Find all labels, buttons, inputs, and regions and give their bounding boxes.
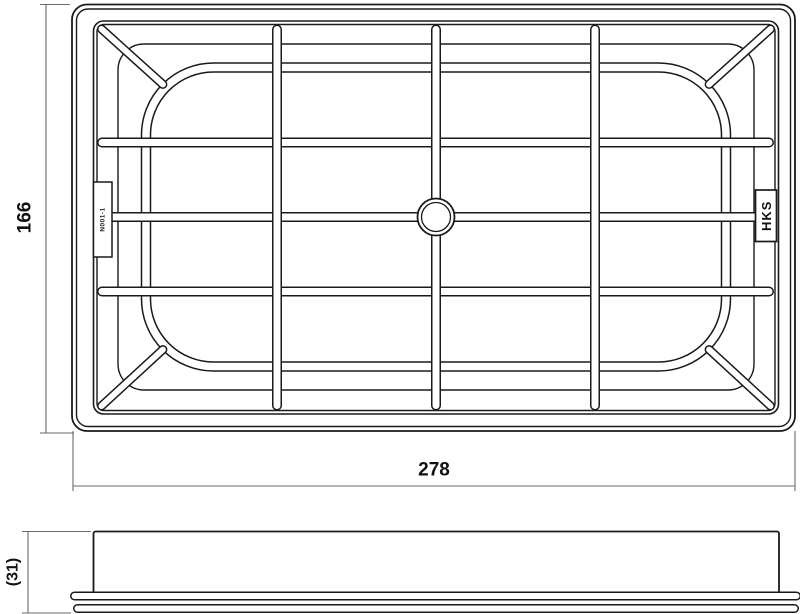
brand-badge: HKS: [756, 190, 777, 242]
part-tab-label: N001-1: [100, 207, 107, 231]
center-hole-inner: [422, 203, 451, 232]
technical-drawing-page: N001-1 HKS 166 278: [0, 0, 800, 614]
side-view: [75, 532, 797, 609]
top-view: N001-1 HKS: [72, 5, 795, 432]
dimension-width-278: 278: [73, 431, 795, 491]
dim-label-side-height: (31): [5, 558, 22, 586]
side-body-outline: [94, 532, 780, 595]
dimension-height-166: 166: [15, 5, 75, 434]
dim-label-width: 278: [418, 460, 450, 481]
brand-badge-label: HKS: [759, 201, 774, 231]
air-filter-technical-drawing: N001-1 HKS 166 278: [0, 0, 800, 614]
part-number-tab: N001-1: [94, 182, 113, 257]
dim-label-height: 166: [15, 202, 36, 234]
dimensions: 166 278 (31): [5, 5, 796, 614]
side-flange-strips: [75, 596, 797, 609]
dimension-side-height-31: (31): [5, 532, 92, 614]
